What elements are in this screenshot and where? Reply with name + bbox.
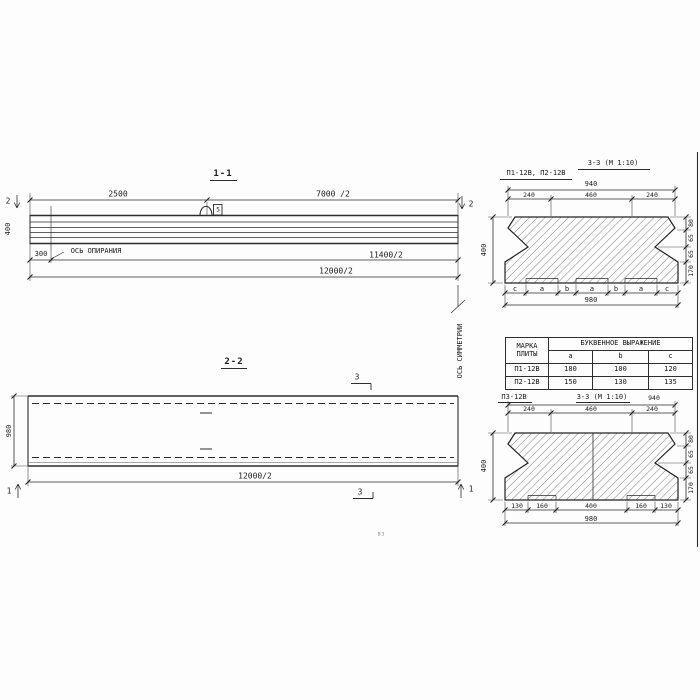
table-cell: П2-12В bbox=[506, 377, 549, 390]
letter-dim-label: c bbox=[513, 285, 517, 293]
dim-label: 940 bbox=[585, 180, 598, 188]
dim-label: 12000/2 bbox=[319, 267, 353, 276]
dim-label: 80 bbox=[687, 435, 695, 443]
dim-label: 65 bbox=[687, 250, 695, 258]
table-cell: a bbox=[549, 351, 593, 364]
dim-label: 400 bbox=[480, 460, 488, 473]
dim-label: 240 bbox=[646, 405, 658, 413]
section-title: 2-2 bbox=[224, 357, 243, 367]
table-row: П2-12В 150 130 135 bbox=[506, 377, 693, 390]
section-title: 1-1 bbox=[213, 169, 232, 179]
section-title: 3-3 (М 1:10) bbox=[577, 393, 628, 401]
dim-label: 400 bbox=[585, 502, 597, 510]
cut-arrow-1 bbox=[15, 484, 464, 498]
cut-mark-label: 3 bbox=[358, 488, 363, 497]
lifting-loop-icon bbox=[200, 206, 212, 215]
section-1-1-linework bbox=[14, 181, 465, 282]
table-header-text: ПЛИТЫ bbox=[516, 350, 537, 358]
symmetry-axis-line bbox=[451, 285, 465, 313]
cut-mark-label: 1 bbox=[7, 487, 12, 496]
dim-label: 130 bbox=[660, 502, 672, 510]
dim-label: 240 bbox=[523, 405, 535, 413]
table-cell: 130 bbox=[593, 377, 649, 390]
drawing-sheet: 1-1 2500 7000 /2 2 2 400 300 ОСЬ ОПИРАНИ… bbox=[0, 0, 700, 700]
table-cell: БУКВЕННОЕ ВЫРАЖЕНИЕ bbox=[549, 338, 693, 351]
cut-mark-label: 3 bbox=[355, 373, 360, 382]
letter-dim-label: a bbox=[590, 285, 594, 293]
table-row: П1-12В 180 100 120 bbox=[506, 364, 693, 377]
dim-label: 400 bbox=[4, 223, 12, 236]
dim-label: 7000 /2 bbox=[316, 190, 350, 199]
cut-mark-label: 2 bbox=[6, 197, 11, 206]
loop-tag-label: 5 bbox=[216, 207, 220, 214]
slab-mark-label: П3-12В bbox=[501, 393, 526, 401]
dim-label: 65 bbox=[687, 234, 695, 242]
dim-label: 980 bbox=[585, 296, 598, 304]
dim-label: 170 bbox=[687, 482, 695, 494]
table-cell: П1-12В bbox=[506, 364, 549, 377]
dim-label: 240 bbox=[523, 191, 535, 199]
dim-label: 2500 bbox=[108, 190, 127, 199]
dim-label: 12000/2 bbox=[238, 472, 272, 481]
dim-label: 80 bbox=[687, 219, 695, 227]
section-2-2-linework bbox=[11, 285, 465, 499]
slab-cross-section bbox=[505, 217, 678, 283]
symmetry-axis-label: ОСЬ СИММЕТРИИ bbox=[456, 324, 464, 379]
dim-label: 940 bbox=[648, 394, 660, 402]
dim-label: 980 bbox=[585, 515, 598, 523]
table-cell: 120 bbox=[649, 364, 693, 377]
letter-dim-label: a bbox=[639, 285, 643, 293]
dim-label: 980 bbox=[5, 425, 13, 438]
table-header-row: МАРКАПЛИТЫ БУКВЕННОЕ ВЫРАЖЕНИЕ bbox=[506, 338, 693, 351]
table-cell: 135 bbox=[649, 377, 693, 390]
dim-label: 460 bbox=[585, 405, 597, 413]
letter-dim-label: b bbox=[565, 285, 569, 293]
dim-label: 65 bbox=[687, 466, 695, 474]
dim-label: 300 bbox=[35, 250, 48, 258]
cut-mark-3 bbox=[351, 384, 373, 499]
section-title: 3-3 (М 1:10) bbox=[588, 159, 639, 167]
dim-label: 160 bbox=[536, 502, 548, 510]
slab-cross-section bbox=[505, 433, 678, 500]
dim-label: 160 bbox=[635, 502, 647, 510]
table-cell: 180 bbox=[549, 364, 593, 377]
dim-label: 400 bbox=[480, 244, 488, 257]
cut-mark-label: 2 bbox=[469, 200, 474, 209]
scan-smudge: вз bbox=[377, 531, 384, 538]
slab-spec-table: МАРКАПЛИТЫ БУКВЕННОЕ ВЫРАЖЕНИЕ a b c П1-… bbox=[505, 337, 693, 390]
letter-dim-label: c bbox=[665, 285, 669, 293]
slab-mark-label: П1-12В, П2-12В bbox=[506, 169, 565, 177]
cut-arrow-2 bbox=[14, 195, 465, 209]
table-cell: b bbox=[593, 351, 649, 364]
cut-mark-label: 1 bbox=[469, 485, 474, 494]
table-cell: 100 bbox=[593, 364, 649, 377]
dim-label: 460 bbox=[585, 191, 597, 199]
dim-label: 65 bbox=[687, 450, 695, 458]
dim-label: 170 bbox=[687, 265, 695, 277]
table-cell: c bbox=[649, 351, 693, 364]
letter-dim-label: a bbox=[540, 285, 544, 293]
support-axis-label: ОСЬ ОПИРАНИЯ bbox=[71, 247, 122, 255]
table-cell: 150 bbox=[549, 377, 593, 390]
dim-label: 240 bbox=[646, 191, 658, 199]
dim-label: 130 bbox=[511, 502, 523, 510]
letter-dim-label: b bbox=[614, 285, 618, 293]
table-cell: МАРКАПЛИТЫ bbox=[506, 338, 549, 364]
dim-label: 11400/2 bbox=[369, 251, 403, 260]
